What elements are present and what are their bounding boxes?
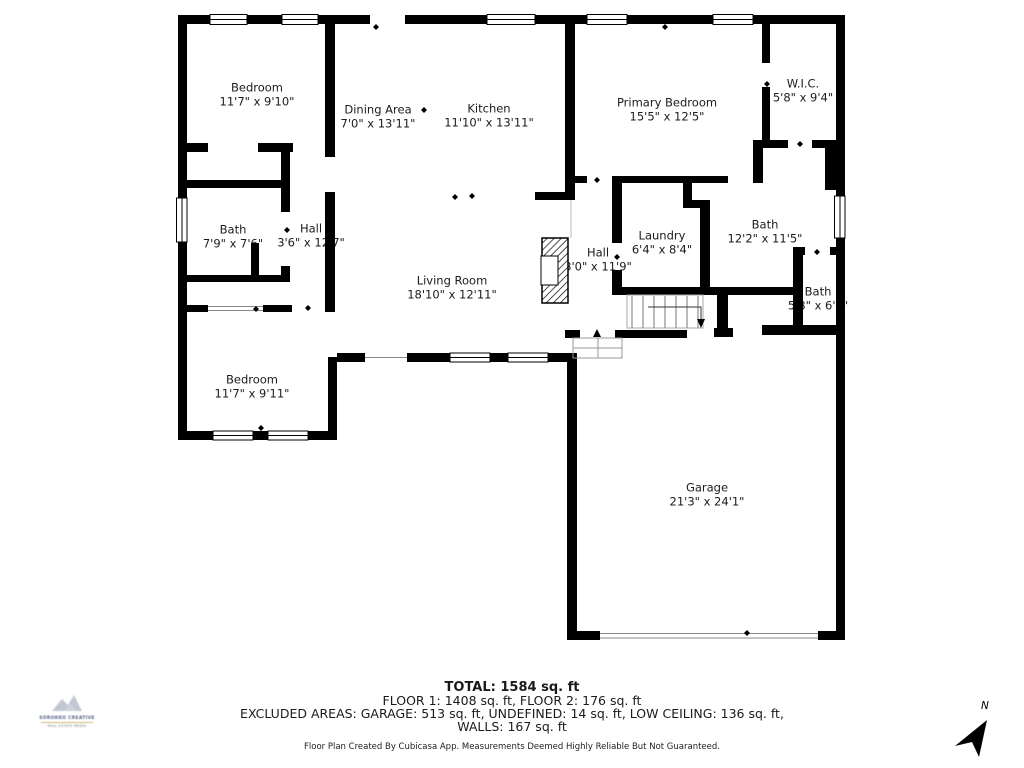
room-name: Garage bbox=[670, 482, 745, 496]
room-name: Kitchen bbox=[444, 103, 534, 117]
room-dims: 15'5" x 12'5" bbox=[617, 110, 717, 124]
room-label-bedroom-bottom: Bedroom11'7" x 9'11" bbox=[215, 374, 290, 401]
room-name: Bath bbox=[728, 219, 803, 233]
room-label-bath-left: Bath7'9" x 7'6" bbox=[203, 224, 263, 251]
room-label-dining: Dining Area7'0" x 13'11" bbox=[341, 104, 416, 131]
room-label-primary-bedroom: Primary Bedroom15'5" x 12'5" bbox=[617, 97, 717, 124]
disclaimer-text: Floor Plan Created By Cubicasa App. Meas… bbox=[0, 742, 1024, 752]
room-dims: 21'3" x 24'1" bbox=[670, 495, 745, 509]
compass-north-label: N bbox=[981, 700, 989, 712]
room-dims: 3'6" x 12'7" bbox=[277, 236, 345, 250]
room-label-bedroom-top: Bedroom11'7" x 9'10" bbox=[220, 82, 295, 109]
room-label-kitchen: Kitchen11'10" x 13'11" bbox=[444, 103, 534, 130]
compass: N bbox=[945, 695, 1015, 765]
room-name: W.I.C. bbox=[773, 78, 833, 92]
room-dims: 6'4" x 8'4" bbox=[632, 243, 692, 257]
room-dims: 7'9" x 7'6" bbox=[203, 237, 263, 251]
room-label-hall-left: Hall3'6" x 12'7" bbox=[277, 223, 345, 250]
room-name: Hall bbox=[564, 247, 632, 261]
room-dims: 11'7" x 9'10" bbox=[220, 95, 295, 109]
door-ticks bbox=[253, 24, 820, 636]
room-dims: 11'7" x 9'11" bbox=[215, 387, 290, 401]
room-label-hall-center: Hall3'0" x 11'9" bbox=[564, 247, 632, 274]
room-label-living-room: Living Room18'10" x 12'11" bbox=[407, 275, 497, 302]
room-dims: 5'8" x 9'4" bbox=[773, 91, 833, 105]
room-label-wic: W.I.C.5'8" x 9'4" bbox=[773, 78, 833, 105]
room-name: Living Room bbox=[407, 275, 497, 289]
room-dims: 3'0" x 11'9" bbox=[564, 260, 632, 274]
room-label-bath-small: Bath5'3" x 6'2" bbox=[788, 286, 848, 313]
staircase bbox=[627, 295, 705, 328]
room-label-bath-right: Bath12'2" x 11'5" bbox=[728, 219, 803, 246]
walls-area-text: WALLS: 167 sq. ft bbox=[0, 720, 1024, 733]
room-dims: 18'10" x 12'11" bbox=[407, 288, 497, 302]
room-name: Bath bbox=[203, 224, 263, 238]
north-arrow-icon bbox=[945, 695, 1015, 765]
room-name: Bedroom bbox=[220, 82, 295, 96]
room-name: Laundry bbox=[632, 230, 692, 244]
area-summary: TOTAL: 1584 sq. ft FLOOR 1: 1408 sq. ft,… bbox=[0, 681, 1024, 752]
threshold-lines bbox=[208, 200, 818, 638]
room-label-laundry: Laundry6'4" x 8'4" bbox=[632, 230, 692, 257]
room-name: Dining Area bbox=[341, 104, 416, 118]
room-label-garage: Garage21'3" x 24'1" bbox=[670, 482, 745, 509]
room-name: Bath bbox=[788, 286, 848, 300]
floor-plan-page: Bedroom11'7" x 9'10" Dining Area7'0" x 1… bbox=[0, 0, 1024, 768]
room-name: Bedroom bbox=[215, 374, 290, 388]
room-dims: 5'3" x 6'2" bbox=[788, 299, 848, 313]
room-name: Primary Bedroom bbox=[617, 97, 717, 111]
room-dims: 12'2" x 11'5" bbox=[728, 232, 803, 246]
room-dims: 7'0" x 13'11" bbox=[341, 117, 416, 131]
room-name: Hall bbox=[277, 223, 345, 237]
room-dims: 11'10" x 13'11" bbox=[444, 116, 534, 130]
stairs-down-arrow-icon bbox=[697, 319, 705, 328]
entry-arrow-icon bbox=[593, 329, 601, 337]
